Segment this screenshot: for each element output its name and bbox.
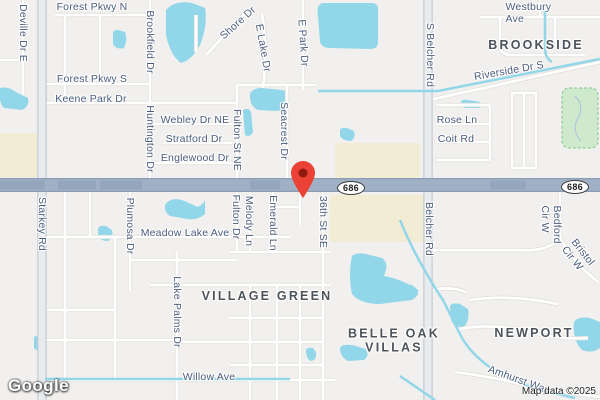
street-label: Belcher Rd	[423, 202, 435, 256]
street-label: Emerald Ln	[267, 195, 279, 251]
street-label: Melody Ln	[243, 196, 255, 246]
street-label: Willow Ave	[183, 371, 236, 383]
street-label: Bedford Cir W	[539, 206, 563, 255]
street-label: Rose Ln	[437, 114, 478, 126]
street-label: Deville Dr E	[17, 4, 29, 62]
street-label: Stratford Dr	[166, 133, 223, 145]
map-canvas[interactable]: Forest Pkwy NDeville Dr EBrookfield DrSh…	[0, 0, 600, 400]
area-label: BROOKSIDE	[488, 38, 584, 52]
street-label: Brookfield Dr	[144, 10, 156, 73]
street-label: Coit Rd	[438, 133, 474, 145]
street-label: Huntington Dr	[144, 105, 156, 172]
pin-glyph	[291, 161, 315, 198]
street-label: E Lake Dr	[253, 23, 273, 73]
location-marker-icon[interactable]	[291, 161, 315, 198]
street-label: Bristol Cir W	[559, 237, 597, 276]
map-attribution: Map data ©2025	[522, 386, 596, 397]
street-label: Westbury Ave	[506, 1, 569, 25]
street-label: Fulton St NE	[231, 109, 243, 171]
street-label: Forest Pkwy S	[57, 73, 127, 85]
area-label: BELLE OAK VILLAS	[348, 327, 440, 356]
street-label: S Belcher Rd	[424, 23, 436, 87]
street-label: E Park Dr	[295, 19, 310, 67]
street-label: Webley Dr NE	[161, 114, 230, 126]
area-label: NEWPORT	[494, 326, 573, 340]
street-label: 36th St SE	[317, 196, 329, 248]
street-label: Seacrest Dr	[278, 102, 290, 160]
street-label: Forest Pkwy N	[57, 1, 128, 13]
route-shield-686: 686	[337, 181, 365, 195]
street-label: Englewood Dr	[161, 152, 229, 164]
street-label: Starkey Rd	[36, 197, 48, 251]
street-label: Riverside Dr S	[473, 59, 545, 83]
street-label: Shore Dr	[218, 4, 258, 42]
street-label: Lake Palms Dr	[171, 276, 183, 347]
street-label: Fulton Dr	[230, 195, 242, 240]
street-label: Keene Park Dr	[55, 93, 126, 105]
street-label: Plumosa Dr	[124, 198, 136, 255]
label-layer: Forest Pkwy NDeville Dr EBrookfield DrSh…	[0, 0, 600, 400]
route-shield-686: 686	[561, 180, 589, 194]
area-label: VILLAGE GREEN	[202, 289, 333, 303]
street-label: Meadow Lake Ave	[141, 227, 230, 239]
google-logo[interactable]: Google	[8, 376, 69, 396]
